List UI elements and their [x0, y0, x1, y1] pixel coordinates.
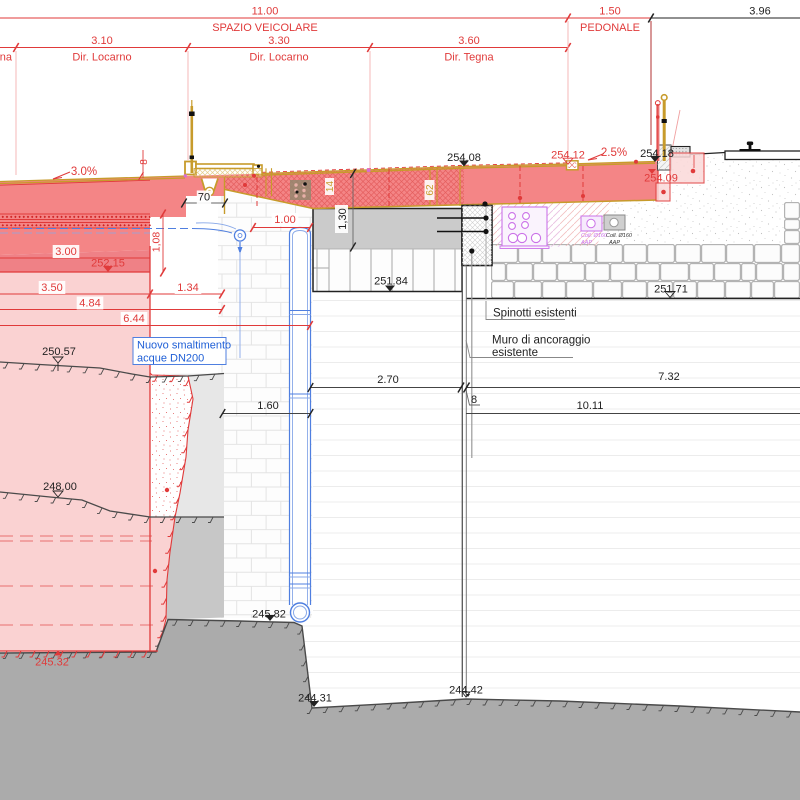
svg-text:3.10: 3.10: [91, 35, 112, 47]
svg-text:Muro di ancoraggio: Muro di ancoraggio: [492, 335, 590, 347]
svg-text:3.00: 3.00: [55, 246, 76, 258]
svg-text:acque DN200: acque DN200: [137, 353, 204, 365]
svg-text:3.50: 3.50: [41, 282, 62, 294]
svg-text:1.34: 1.34: [177, 282, 198, 294]
svg-text:8: 8: [471, 394, 477, 406]
svg-text:1,30: 1,30: [337, 208, 349, 229]
svg-text:254.12: 254.12: [551, 150, 585, 162]
svg-text:1.50: 1.50: [599, 6, 620, 18]
svg-text:4.84: 4.84: [79, 298, 100, 310]
svg-text:1.60: 1.60: [257, 400, 278, 412]
svg-text:Nuovo smaltimento: Nuovo smaltimento: [137, 340, 231, 352]
svg-text:na: na: [0, 52, 13, 64]
svg-text:2.5%: 2.5%: [601, 147, 627, 159]
svg-text:250.57: 250.57: [42, 346, 76, 358]
svg-text:AAP: AAP: [580, 240, 592, 246]
svg-text:3.60: 3.60: [458, 35, 479, 47]
svg-text:8: 8: [139, 159, 150, 165]
svg-text:251.71: 251.71: [654, 284, 688, 296]
svg-text:254.09: 254.09: [644, 173, 678, 185]
svg-text:70: 70: [198, 192, 210, 204]
svg-text:244.42: 244.42: [449, 685, 483, 697]
svg-text:Coll. Ø160: Coll. Ø160: [581, 233, 608, 239]
svg-text:2.70: 2.70: [377, 374, 398, 386]
svg-text:PEDONALE: PEDONALE: [580, 22, 640, 34]
svg-text:Dir. Tegna: Dir. Tegna: [444, 52, 494, 64]
svg-text:7.32: 7.32: [658, 371, 679, 383]
svg-text:10.11: 10.11: [577, 400, 604, 412]
svg-text:3.96: 3.96: [749, 6, 770, 18]
svg-text:Dir. Locarno: Dir. Locarno: [249, 52, 308, 64]
svg-text:Coll. Ø160: Coll. Ø160: [606, 233, 633, 239]
svg-text:3.30: 3.30: [268, 35, 289, 47]
svg-text:Dir. Locarno: Dir. Locarno: [72, 52, 131, 64]
svg-text:245.32: 245.32: [35, 657, 69, 669]
svg-text:AAP: AAP: [608, 240, 620, 246]
svg-text:14: 14: [325, 181, 336, 193]
svg-text:6.44: 6.44: [123, 313, 144, 325]
svg-text:SPAZIO VEICOLARE: SPAZIO VEICOLARE: [212, 22, 318, 34]
svg-text:Spinotti esistenti: Spinotti esistenti: [493, 308, 577, 320]
svg-text:1.00: 1.00: [274, 214, 295, 226]
svg-text:62: 62: [425, 184, 436, 196]
svg-text:3.0%: 3.0%: [71, 166, 97, 178]
svg-text:11.00: 11.00: [252, 6, 279, 18]
svg-text:1,08: 1,08: [151, 232, 163, 253]
